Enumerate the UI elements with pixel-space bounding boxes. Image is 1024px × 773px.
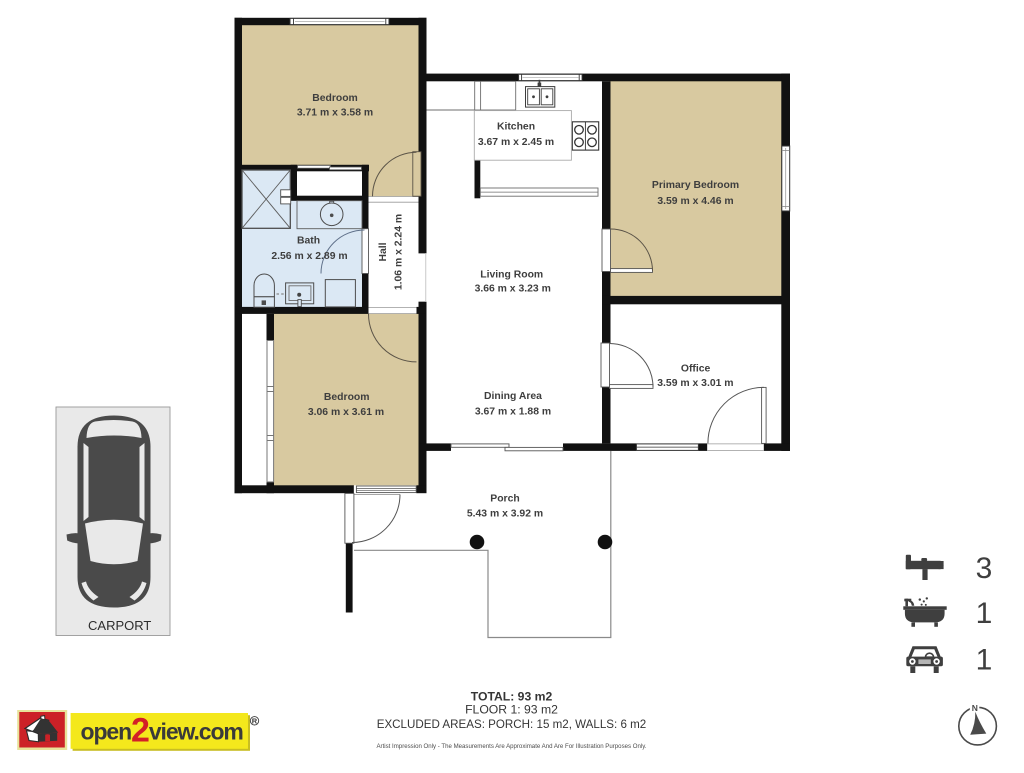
svg-text:3.67 m x 1.88 m: 3.67 m x 1.88 m [475, 406, 551, 417]
svg-text:Dining Area: Dining Area [484, 391, 542, 402]
svg-text:Bedroom: Bedroom [324, 392, 370, 403]
svg-text:Primary Bedroom: Primary Bedroom [652, 180, 739, 191]
svg-text:Kitchen: Kitchen [497, 121, 535, 132]
svg-text:Office: Office [681, 363, 711, 374]
svg-text:3.66 m x 3.23 m: 3.66 m x 3.23 m [475, 283, 551, 294]
svg-text:R: R [252, 717, 258, 726]
svg-text:5.43 m x 3.92 m: 5.43 m x 3.92 m [467, 508, 543, 519]
svg-text:1: 1 [976, 597, 993, 630]
svg-text:Bedroom: Bedroom [312, 93, 358, 104]
svg-text:TOTAL: 93 m2: TOTAL: 93 m2 [471, 689, 553, 703]
svg-text:Hall: Hall [378, 242, 389, 261]
svg-text:3.06 m x 3.61 m: 3.06 m x 3.61 m [308, 407, 384, 418]
svg-text:3.59 m x 3.01 m: 3.59 m x 3.01 m [657, 378, 733, 389]
svg-text:3.59 m x 4.46 m: 3.59 m x 4.46 m [657, 196, 733, 207]
svg-text:Living Room: Living Room [480, 269, 543, 280]
svg-text:2.56 m x 2.89 m: 2.56 m x 2.89 m [271, 251, 347, 262]
svg-text:N: N [972, 703, 978, 713]
svg-text:3.67 m x 2.45 m: 3.67 m x 2.45 m [478, 137, 554, 148]
svg-text:3.71 m x 3.58 m: 3.71 m x 3.58 m [297, 107, 373, 118]
svg-text:1: 1 [976, 644, 993, 677]
svg-text:FLOOR 1: 93 m2: FLOOR 1: 93 m2 [465, 703, 558, 717]
svg-text:3: 3 [976, 552, 993, 585]
svg-text:EXCLUDED AREAS: PORCH: 15 m2,: EXCLUDED AREAS: PORCH: 15 m2, WALLS: 6 m… [377, 718, 647, 731]
svg-text:1.06 m x 2.24 m: 1.06 m x 2.24 m [393, 214, 404, 290]
svg-text:CARPORT: CARPORT [88, 618, 151, 633]
svg-text:Porch: Porch [490, 494, 519, 505]
svg-text:Artist Impression Only - The M: Artist Impression Only - The Measurement… [376, 743, 646, 750]
svg-text:Bath: Bath [297, 235, 320, 246]
